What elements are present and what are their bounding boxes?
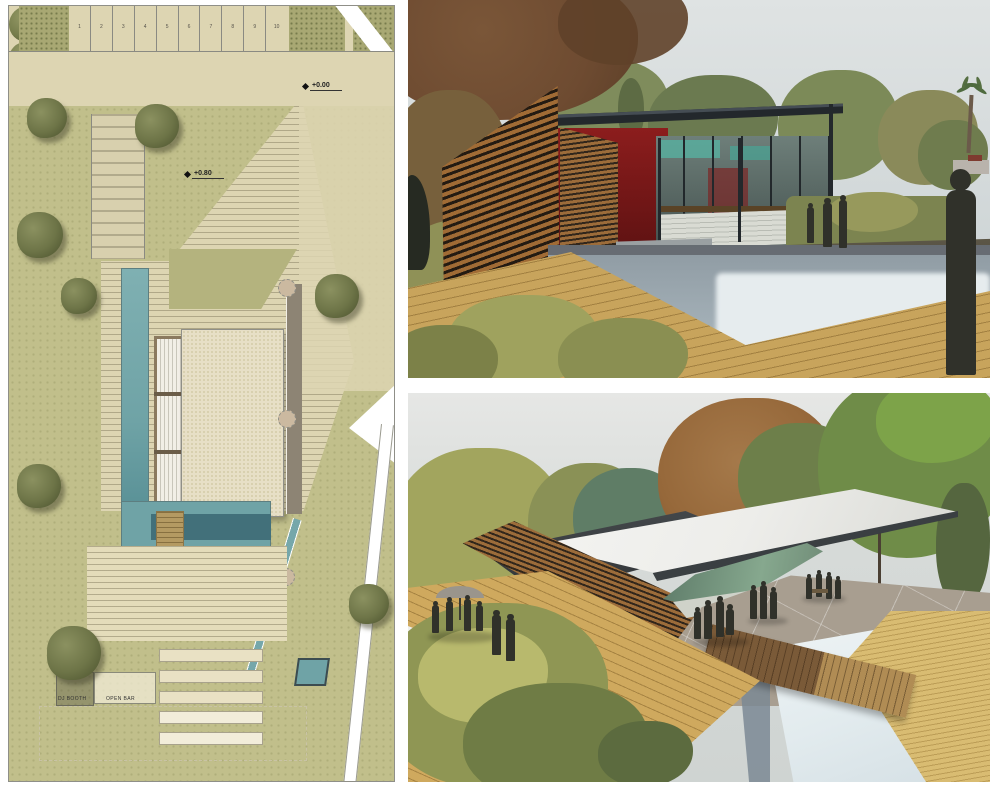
person-silhouette <box>726 609 734 635</box>
render-exterior-view <box>408 0 990 378</box>
plan-right-pavement <box>299 106 395 391</box>
person-silhouette <box>492 615 501 655</box>
ground-shadow <box>694 637 749 647</box>
steel-post <box>738 138 741 242</box>
dj-booth-label: DJ BOOTH <box>58 696 86 702</box>
person-silhouette <box>464 599 471 631</box>
parking-strip: 1 2 3 4 5 6 7 8 9 10 <box>9 6 395 52</box>
person-silhouette <box>816 573 822 597</box>
event-area-outline <box>39 706 307 761</box>
parking-hedge-right <box>289 6 345 51</box>
person-silhouette <box>835 579 841 599</box>
lap-pool <box>121 268 149 524</box>
person-silhouette <box>823 203 832 247</box>
patio-table <box>812 589 828 593</box>
parking-stall: 6 <box>178 6 200 51</box>
parking-stalls: 1 2 3 4 5 6 7 8 9 10 <box>69 6 287 51</box>
parking-stall-number: 4 <box>135 24 156 30</box>
event-deck <box>87 546 287 641</box>
pool-dark-reflection <box>548 245 990 255</box>
plan-upper-plaza <box>9 51 395 106</box>
elevation-marker: +0.00 <box>303 82 342 91</box>
parking-stall: 7 <box>199 6 221 51</box>
small-pool <box>294 658 330 686</box>
parking-stall: 2 <box>90 6 112 51</box>
elevation-marker: +0.80 <box>185 170 224 179</box>
person-silhouette <box>770 591 777 619</box>
parking-stall: 1 <box>69 6 90 51</box>
pavement-tree-circle <box>278 410 296 428</box>
elevation-label: +0.00 <box>310 82 342 91</box>
north-point-icon <box>184 171 191 178</box>
umbrella-pole <box>459 598 461 620</box>
parking-stall-number: 5 <box>157 24 178 30</box>
tree-trunk <box>878 533 881 589</box>
open-bar-label: OPEN BAR <box>106 696 135 702</box>
bench-strip <box>159 649 263 662</box>
parking-stall-number: 6 <box>179 24 200 30</box>
north-point-icon <box>302 83 309 90</box>
parking-stall-number: 2 <box>91 24 112 30</box>
person-silhouette <box>446 601 453 631</box>
person-silhouette <box>704 605 712 639</box>
parking-stall-number: 10 <box>266 24 287 30</box>
person-silhouette <box>432 605 439 633</box>
parking-stall: 5 <box>156 6 178 51</box>
bench-strip <box>159 670 263 683</box>
parking-stall: 8 <box>221 6 243 51</box>
building-side-walkway <box>286 284 302 514</box>
parking-stall-number: 8 <box>222 24 243 30</box>
person-silhouette <box>806 577 812 599</box>
elevation-label: +0.80 <box>192 170 224 179</box>
person-silhouette <box>476 605 483 631</box>
render-aerial-view <box>408 393 990 782</box>
parking-stall: 3 <box>112 6 134 51</box>
parking-stall: 10 <box>265 6 287 51</box>
person-silhouette <box>826 575 832 599</box>
person-silhouette <box>694 611 701 639</box>
steel-post <box>658 138 661 242</box>
person-silhouette <box>750 589 757 619</box>
bench-strip <box>159 691 263 704</box>
parking-stall-number: 7 <box>200 24 221 30</box>
person-silhouette <box>506 619 515 661</box>
person-silhouette <box>760 585 767 619</box>
parking-hedge-left <box>19 6 69 51</box>
person-silhouette <box>807 207 814 243</box>
parking-stall-number: 1 <box>69 24 90 30</box>
render-tree-bright <box>876 393 990 463</box>
person-silhouette-foreground <box>946 190 976 375</box>
presentation-board: 1 2 3 4 5 6 7 8 9 10 <box>0 0 990 787</box>
person-silhouette <box>716 601 724 637</box>
building-main-roof <box>181 329 284 517</box>
bush <box>598 721 693 782</box>
pavement-tree-circle <box>278 279 296 297</box>
distant-roof <box>968 155 982 161</box>
parking-stall: 4 <box>134 6 156 51</box>
person-silhouette <box>839 200 847 248</box>
site-plan-panel: 1 2 3 4 5 6 7 8 9 10 <box>8 5 395 782</box>
parking-stall: 9 <box>243 6 265 51</box>
parking-stall-number: 3 <box>113 24 134 30</box>
parking-stall-number: 9 <box>244 24 265 30</box>
